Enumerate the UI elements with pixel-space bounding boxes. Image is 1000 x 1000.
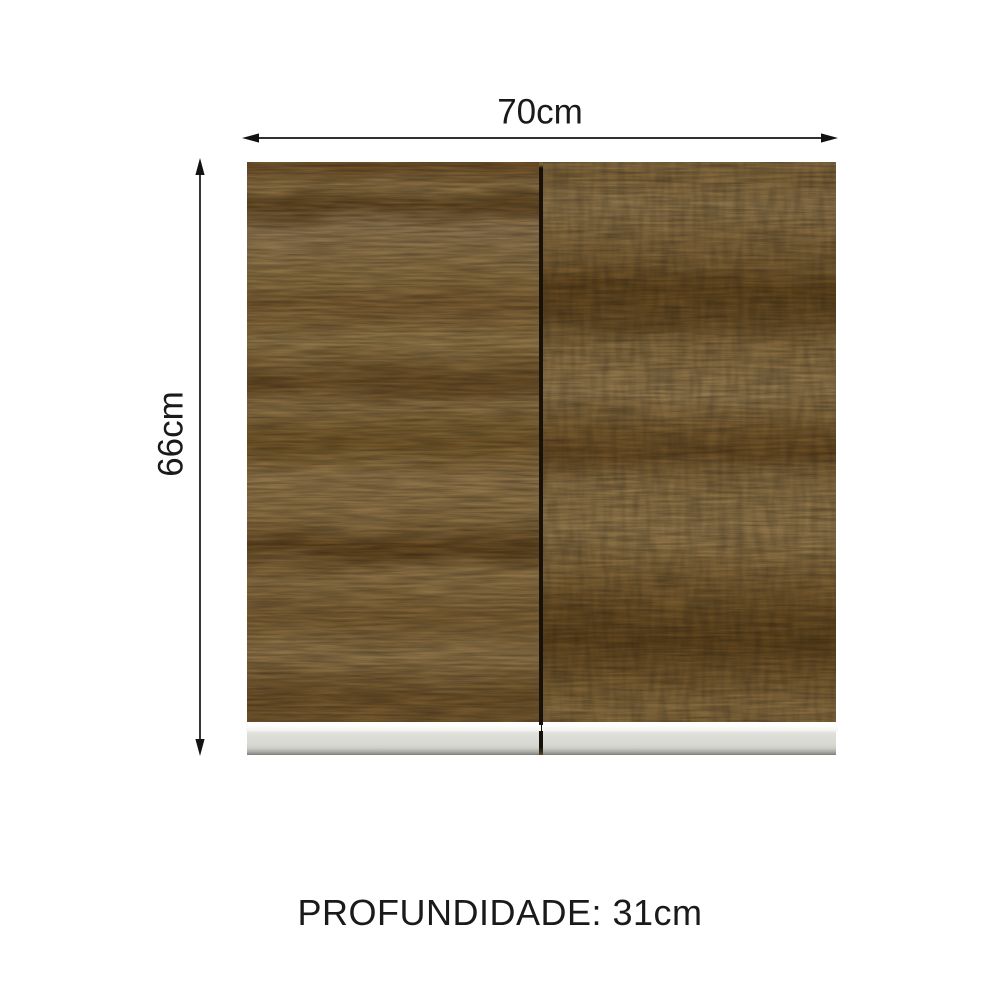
arrowhead-left-icon [242, 133, 259, 142]
arrowhead-bottom-icon [195, 739, 204, 756]
depth-label: PROFUNDIDADE: 31cm [0, 892, 1000, 934]
arrowhead-top-icon [195, 158, 204, 175]
height-dimension-arrow [192, 158, 208, 756]
cabinet-door-right [543, 162, 836, 755]
width-dimension-arrow [242, 130, 838, 146]
handle-highlight-right [542, 725, 838, 731]
door-handle-left [247, 725, 539, 755]
wood-texture-left [247, 162, 539, 722]
arrowhead-right-icon [821, 133, 838, 142]
width-dimension-label: 70cm [497, 95, 583, 130]
cabinet-door-left [247, 162, 539, 755]
door-handle-right [543, 725, 836, 755]
product-dimension-diagram: 70cm 66cm [0, 0, 1000, 1000]
wood-texture-right [543, 162, 836, 722]
cabinet-illustration [247, 162, 836, 755]
height-dimension-label: 66cm [154, 391, 189, 477]
handle-highlight-left [246, 725, 541, 731]
